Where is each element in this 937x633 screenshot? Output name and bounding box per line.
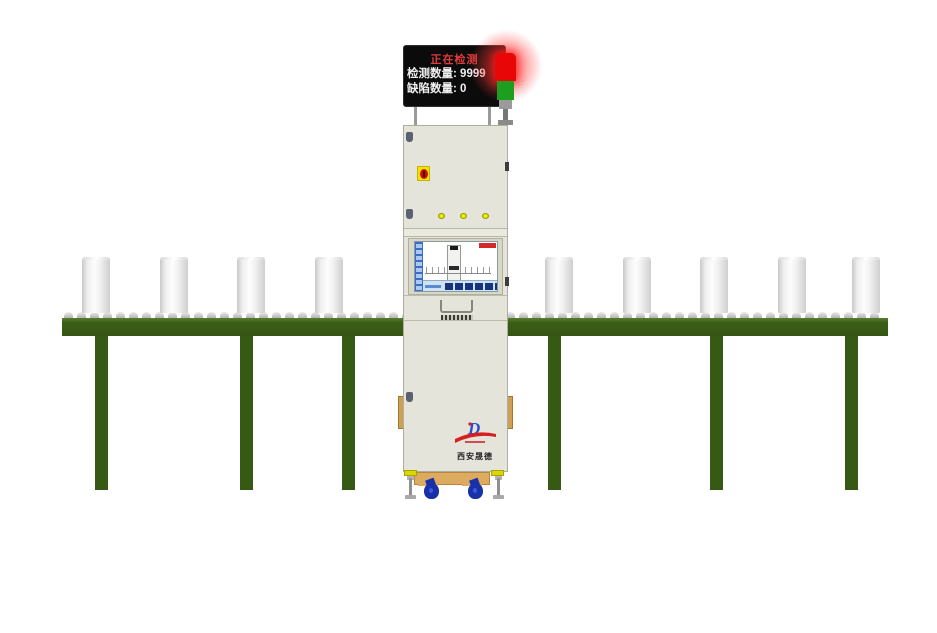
drawer-handle <box>440 300 473 313</box>
screen-sidebar-button <box>416 256 422 260</box>
cabinet-divider <box>404 228 507 237</box>
caster-wheel-left <box>418 476 444 500</box>
hinge-mark-upper <box>505 162 509 171</box>
foot-stem <box>409 478 412 495</box>
screen-toolbar-text <box>425 285 441 288</box>
screen-sidebar-button <box>416 268 422 272</box>
vent-grille <box>441 315 473 320</box>
brand-name: 西安晟德 <box>449 452 501 461</box>
leveling-foot-left <box>404 475 417 501</box>
detect-count-label: 检测数量: <box>407 68 457 80</box>
cabinet-seam-lower <box>404 320 507 321</box>
door-latch-mid <box>406 209 413 219</box>
mini-conveyor-post <box>489 267 490 273</box>
foot-plate <box>493 495 504 499</box>
emergency-stop-cap <box>420 169 428 179</box>
screen-sidebar-button <box>416 244 422 248</box>
screen-sidebar-button <box>416 250 422 254</box>
mini-conveyor-post <box>477 267 478 273</box>
emergency-stop-button[interactable] <box>417 166 430 181</box>
status-display-board: 正在检测 检测数量: 9999 缺陷数量: 0 <box>403 45 506 107</box>
screen-toolbar-button <box>475 283 483 290</box>
foot-plate <box>405 495 416 499</box>
hmi-screen[interactable] <box>414 241 498 292</box>
foot-stem <box>497 478 500 495</box>
screen-sidebar-button <box>416 280 422 284</box>
indicator-light <box>438 213 445 219</box>
detect-count-row: 检测数量: 9999 <box>404 67 505 82</box>
screen-toolbar-button <box>485 283 493 290</box>
screen-mini-machine <box>447 245 461 281</box>
mini-conveyor-post <box>465 267 466 273</box>
mini-machine-band <box>449 266 459 270</box>
screen-alarm-chip <box>479 243 496 248</box>
mini-conveyor-post <box>444 267 445 273</box>
leveling-foot-right <box>492 475 505 501</box>
caster-wheel-right <box>462 476 488 500</box>
screen-toolbar-button <box>455 283 463 290</box>
tower-green-light <box>497 81 514 100</box>
tower-red-light <box>495 53 516 81</box>
base-strip-right <box>491 470 504 476</box>
indicator-light <box>482 213 489 219</box>
status-text: 正在检测 <box>404 51 505 67</box>
detect-count-value: 9999 <box>460 68 486 80</box>
screen-toolbar-button <box>495 283 498 290</box>
defect-count-value: 0 <box>460 83 466 95</box>
screen-mini-conveyor <box>425 273 491 274</box>
defect-count-label: 缺陷数量: <box>407 83 457 95</box>
screen-toolbar <box>423 280 497 291</box>
tower-foot <box>498 120 513 125</box>
simulation-stage: 正在检测 检测数量: 9999 缺陷数量: 0 D <box>0 0 937 633</box>
mini-conveyor-post <box>483 267 484 273</box>
indicator-light <box>460 213 467 219</box>
mini-conveyor-post <box>438 267 439 273</box>
cabinet-seam-upper <box>404 295 507 296</box>
door-latch-lower <box>406 392 413 402</box>
mini-conveyor-post <box>426 267 427 273</box>
brand-logo: D 西安晟德 <box>449 417 501 463</box>
brand-emblem: D <box>449 417 501 447</box>
defect-count-row: 缺陷数量: 0 <box>404 82 505 97</box>
screen-sidebar-button <box>416 262 422 266</box>
base-strip-left <box>404 470 417 476</box>
board-post-left <box>414 106 417 126</box>
screen-toolbar-button <box>445 283 453 290</box>
screen-sidebar-button <box>416 274 422 278</box>
screen-toolbar-button <box>465 283 473 290</box>
caster-hub <box>473 488 477 493</box>
screen-sidebar <box>415 242 423 291</box>
mini-conveyor-post <box>471 267 472 273</box>
door-latch-top <box>406 132 413 142</box>
mini-machine-cap <box>450 246 458 250</box>
screen-sidebar-button <box>416 286 422 290</box>
hinge-mark-lower <box>505 277 509 286</box>
mini-conveyor-post <box>432 267 433 273</box>
tower-base-segment <box>499 100 512 109</box>
caster-hub <box>429 488 433 493</box>
board-post-right <box>488 106 491 126</box>
